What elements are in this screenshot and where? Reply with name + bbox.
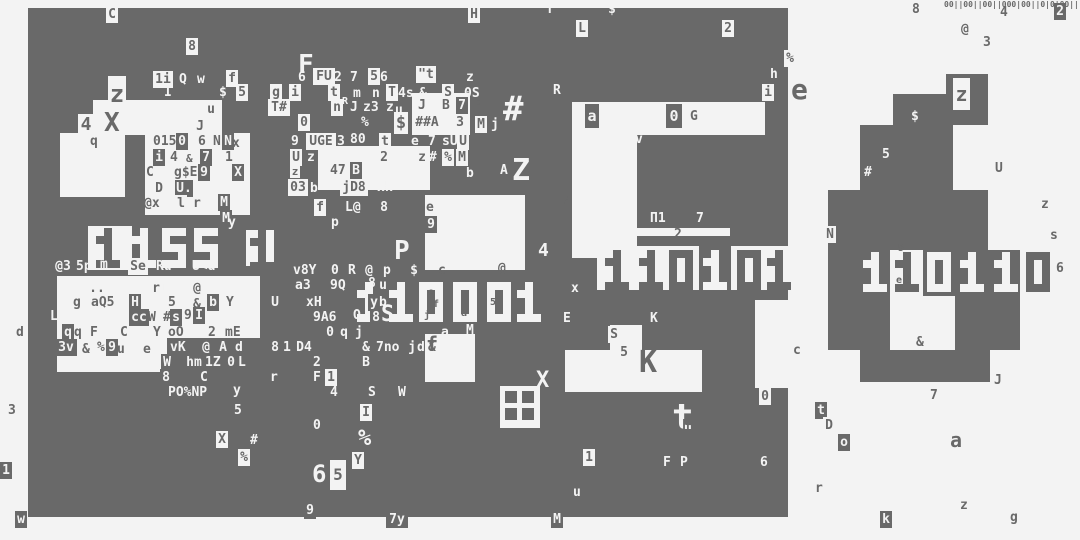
big-binary-digit-pixel [737, 282, 745, 290]
big-binary-digit-pixel [605, 282, 613, 290]
noise-glyph: G [690, 110, 698, 123]
light-patch [565, 350, 702, 392]
big-binary-digit-pixel [104, 228, 112, 236]
noise-glyph: 8 [368, 277, 376, 290]
noise-glyph: 6 [198, 135, 206, 148]
noise-glyph: v [113, 285, 118, 294]
big-binary-digit-pixel [677, 282, 685, 290]
big-binary-digit-pixel [669, 266, 677, 274]
noise-glyph: G [143, 356, 151, 369]
noise-glyph: p [383, 264, 391, 277]
noise-glyph: @ [961, 23, 969, 36]
noise-glyph: 1 [225, 151, 233, 164]
big-binary-digit-pixel [911, 284, 919, 292]
big-binary-digit-pixel [1002, 284, 1010, 292]
noise-glyph: b [466, 167, 474, 180]
noise-glyph: Q [179, 73, 187, 86]
big-binary-digit-pixel [621, 282, 629, 290]
noise-glyph: H [468, 6, 480, 23]
big-binary-digit-pixel [258, 246, 266, 254]
big-binary-digit-pixel [745, 282, 753, 290]
noise-glyph: o [838, 434, 850, 451]
noise-glyph: z [307, 151, 315, 164]
noise-glyph: r [815, 482, 823, 495]
noise-glyph: r [270, 371, 278, 384]
noise-glyph: r [193, 197, 201, 210]
big-binary-digit-pixel [495, 314, 503, 322]
noise-glyph: M [475, 116, 487, 133]
noise-glyph: D [153, 180, 165, 197]
noise-glyph: z [1041, 198, 1049, 211]
noise-glyph: M [456, 149, 468, 166]
big-binary-digit-pixel [503, 290, 511, 298]
noise-glyph: e [791, 76, 808, 104]
noise-glyph: q [338, 324, 350, 341]
big-binary-digit-pixel [453, 306, 461, 314]
noise-glyph: 2 [722, 20, 734, 37]
noise-glyph: U [995, 162, 1003, 175]
noise-glyph: y [233, 384, 241, 397]
noise-glyph: U [156, 103, 164, 116]
big-binary-digit-pixel [775, 274, 783, 282]
noise-glyph: P [394, 238, 410, 264]
noise-glyph: u [573, 486, 581, 499]
noise-glyph: 8 [160, 369, 172, 386]
noise-glyph: 9 [291, 135, 299, 148]
big-binary-digit-pixel [943, 284, 951, 292]
big-binary-digit-pixel [1002, 268, 1010, 276]
big-binary-digit-pixel [775, 250, 783, 258]
noise-glyph: C [200, 371, 208, 384]
noise-glyph: & [82, 343, 90, 356]
dark-patch [522, 391, 534, 403]
big-binary-digit-pixel [775, 266, 783, 274]
big-binary-digit-pixel [613, 274, 621, 282]
noise-glyph: i [762, 84, 774, 101]
big-binary-digit-pixel [162, 228, 170, 236]
noise-glyph: S [608, 326, 620, 343]
big-binary-digit-pixel [140, 244, 148, 252]
noise-glyph: # [429, 151, 437, 164]
dark-patch [860, 350, 990, 382]
big-binary-digit-pixel [613, 282, 621, 290]
noise-glyph: 5 [330, 460, 346, 490]
big-binary-digit-pixel [525, 290, 533, 298]
noise-glyph: @ [498, 262, 506, 275]
big-binary-digit-pixel [162, 244, 170, 252]
noise-glyph: n [372, 87, 380, 100]
big-binary-digit-pixel [737, 258, 745, 266]
noise-glyph: % [238, 449, 250, 466]
big-binary-digit-pixel [162, 236, 170, 244]
noise-glyph: z [290, 164, 300, 178]
noise-glyph: p [331, 216, 339, 229]
noise-glyph: F [473, 99, 481, 112]
noise-glyph: $ [911, 110, 919, 123]
big-binary-digit-pixel [250, 262, 258, 270]
big-binary-digit-pixel [655, 282, 663, 290]
noise-glyph: L@ [345, 201, 361, 214]
noise-glyph: I [164, 86, 172, 99]
big-binary-digit-pixel [903, 260, 911, 268]
noise-glyph: 0 [298, 114, 310, 131]
noise-glyph: l [175, 195, 187, 212]
noise-glyph: d [417, 341, 425, 354]
noise-glyph: 2 [334, 71, 342, 84]
noise-glyph: j [424, 311, 430, 321]
noise-glyph: h [682, 419, 690, 432]
noise-glyph: w [197, 73, 205, 86]
noise-glyph: 2 [904, 274, 912, 287]
big-binary-digit-pixel [210, 244, 218, 252]
big-binary-digit-pixel [525, 306, 533, 314]
big-binary-digit-pixel [767, 282, 775, 290]
noise-glyph: 2 [1054, 3, 1066, 20]
big-binary-digit-pixel [613, 250, 621, 258]
big-binary-digit-pixel [405, 314, 413, 322]
big-binary-digit-pixel [685, 250, 693, 258]
light-patch [637, 228, 730, 236]
noise-glyph: 5 [898, 244, 904, 254]
big-binary-digit-pixel [639, 282, 647, 290]
big-binary-digit-pixel [935, 284, 943, 292]
noise-glyph: 5 [490, 298, 496, 308]
noise-glyph: oO [168, 326, 184, 339]
big-binary-digit-pixel [469, 298, 477, 306]
big-binary-digit-pixel [1026, 268, 1034, 276]
big-binary-digit-pixel [685, 282, 693, 290]
noise-glyph: Y [226, 296, 234, 309]
noise-glyph: D [823, 417, 835, 434]
noise-glyph: a [441, 326, 449, 339]
noise-glyph: Se [128, 258, 148, 275]
noise-glyph: i [289, 84, 301, 101]
noise-glyph: X [450, 341, 458, 354]
big-binary-digit-pixel [469, 282, 477, 290]
noise-glyph: 9A6 [313, 311, 336, 324]
noise-glyph: d [235, 341, 243, 354]
noise-glyph: 0 [331, 264, 339, 277]
noise-glyph: 5 [236, 84, 248, 101]
big-binary-digit-pixel [711, 282, 719, 290]
noise-glyph: 2 [378, 149, 390, 166]
big-binary-digit-pixel [397, 290, 405, 298]
dark-patch [522, 408, 534, 420]
big-binary-digit-pixel [96, 236, 104, 244]
noise-glyph: J [418, 99, 426, 112]
big-binary-digit-pixel [927, 252, 935, 260]
big-binary-digit-pixel [703, 282, 711, 290]
big-binary-digit-pixel [194, 228, 202, 236]
noise-glyph: jD8 [340, 179, 368, 196]
big-binary-digit-pixel [469, 314, 477, 322]
big-binary-digit-pixel [194, 244, 202, 252]
big-binary-digit-pixel [1042, 260, 1050, 268]
big-binary-digit-pixel [170, 244, 178, 252]
big-binary-digit-pixel [250, 238, 258, 246]
noise-glyph: 7 [696, 212, 704, 225]
glitch-canvas: C81iQwfzI$5UDKu4XJkHF6FU2756"tzgitmnT4s&… [0, 0, 1080, 540]
noise-glyph: j [355, 326, 363, 339]
big-binary-digit-pixel [968, 252, 976, 260]
noise-glyph: Ru [156, 260, 172, 273]
big-binary-digit-pixel [453, 290, 461, 298]
big-binary-digit-pixel [903, 252, 911, 260]
big-binary-digit-pixel [140, 228, 148, 236]
noise-glyph: 7 [930, 389, 938, 402]
noise-glyph: M [466, 324, 474, 337]
big-binary-digit-pixel [148, 260, 156, 268]
noise-glyph: C [146, 166, 154, 179]
noise-glyph: m [353, 87, 361, 100]
big-binary-digit-pixel [435, 314, 443, 322]
noise-glyph: xH [306, 296, 322, 309]
big-binary-digit-pixel [669, 274, 677, 282]
noise-glyph: B [350, 162, 362, 179]
noise-glyph: N [213, 135, 221, 148]
noise-glyph: f [314, 199, 326, 216]
noise-glyph: 4 [1000, 6, 1008, 19]
noise-glyph: 0 [324, 324, 336, 341]
noise-glyph: s [1050, 229, 1058, 242]
big-binary-digit-pixel [503, 306, 511, 314]
noise-glyph: B [360, 354, 372, 371]
big-binary-digit-pixel [960, 284, 968, 292]
big-binary-digit-pixel [647, 282, 655, 290]
noise-glyph: 6 [467, 341, 475, 354]
noise-glyph: e [428, 288, 434, 298]
big-binary-digit-pixel [711, 258, 719, 266]
big-binary-digit-pixel [419, 290, 427, 298]
noise-glyph: 7no [376, 341, 399, 354]
noise-glyph: u [377, 277, 389, 294]
big-binary-digit-pixel [863, 284, 871, 292]
noise-glyph: z [386, 101, 394, 114]
noise-glyph: 3 [454, 114, 466, 131]
noise-glyph: 5 [882, 148, 890, 161]
big-binary-digit-pixel [1026, 276, 1034, 284]
big-binary-digit-pixel [517, 314, 525, 322]
big-binary-digit-pixel [994, 284, 1002, 292]
big-binary-digit-pixel [178, 228, 186, 236]
big-binary-digit-pixel [669, 282, 677, 290]
big-binary-digit-pixel [871, 284, 879, 292]
dark-patch [828, 250, 890, 350]
noise-glyph: 5 [234, 404, 242, 417]
noise-glyph: Y [153, 326, 161, 339]
big-binary-digit-pixel [202, 228, 210, 236]
noise-glyph: 7 [428, 135, 436, 148]
big-binary-digit-pixel [775, 282, 783, 290]
noise-glyph: f [546, 3, 554, 16]
big-binary-digit-pixel [469, 290, 477, 298]
noise-glyph: 1 [0, 462, 12, 479]
noise-glyph: % [442, 149, 454, 166]
noise-glyph: k [438, 116, 446, 129]
big-binary-digit-pixel [685, 258, 693, 266]
noise-glyph: "t [416, 66, 436, 83]
noise-glyph: aQ5 [91, 296, 114, 309]
big-binary-digit-pixel [1026, 252, 1034, 260]
big-binary-digit-pixel [517, 290, 525, 298]
big-binary-digit-pixel [895, 260, 903, 268]
noise-glyph: % [358, 428, 371, 450]
noise-glyph: h [770, 68, 778, 81]
big-binary-digit-pixel [753, 274, 761, 282]
noise-glyph: m [100, 258, 108, 271]
noise-glyph: 9Q [330, 279, 346, 292]
noise-glyph: 9 [198, 164, 210, 181]
noise-glyph: 8 [269, 339, 281, 356]
big-binary-digit-pixel [613, 258, 621, 266]
noise-glyph: D4 [293, 339, 315, 356]
big-binary-digit-pixel [357, 290, 365, 298]
noise-glyph: 47 [330, 164, 346, 177]
noise-glyph: # [864, 166, 872, 179]
noise-glyph: 4 [330, 386, 338, 399]
noise-glyph: % [361, 116, 369, 129]
big-binary-digit-pixel [737, 250, 745, 258]
big-binary-digit-pixel [1026, 260, 1034, 268]
big-binary-digit-pixel [775, 258, 783, 266]
big-binary-digit-pixel [711, 250, 719, 258]
noise-glyph: Z [512, 156, 530, 186]
noise-glyph: 0 [176, 133, 188, 150]
noise-glyph: J [994, 374, 1002, 387]
noise-glyph: # [503, 92, 523, 126]
noise-glyph: F [313, 371, 321, 384]
noise-glyph: b [310, 182, 318, 195]
noise-glyph: x [232, 137, 240, 150]
big-binary-digit-pixel [258, 238, 266, 246]
big-binary-digit-pixel [737, 274, 745, 282]
dark-patch [505, 391, 517, 403]
noise-glyph: M [551, 511, 563, 528]
noise-glyph: b [207, 294, 219, 311]
big-binary-digit-pixel [737, 266, 745, 274]
noise-glyph: a [461, 309, 467, 319]
noise-glyph: I [360, 404, 372, 421]
noise-glyph: 1 [283, 341, 291, 354]
big-binary-digit-pixel [1026, 284, 1034, 292]
noise-glyph: 5 [368, 68, 380, 85]
noise-glyph: @x [144, 197, 160, 210]
noise-glyph: 3 [983, 36, 991, 49]
big-binary-digit-pixel [419, 282, 427, 290]
noise-glyph: S [381, 304, 394, 326]
big-binary-digit-pixel [871, 276, 879, 284]
noise-glyph: g$E [174, 166, 197, 179]
noise-glyph: 9 [184, 309, 192, 322]
noise-glyph: 3 [8, 404, 16, 417]
big-binary-digit-pixel [943, 268, 951, 276]
noise-glyph: 4 [78, 114, 94, 136]
noise-glyph: vK [170, 341, 186, 354]
noise-glyph: 5p [76, 260, 92, 273]
noise-glyph: 2 [674, 228, 682, 241]
big-binary-digit-pixel [669, 258, 677, 266]
noise-glyph: C [120, 326, 128, 339]
noise-glyph: R [342, 97, 348, 107]
big-binary-digit-pixel [469, 306, 477, 314]
noise-glyph: @ [191, 280, 203, 297]
big-binary-digit-pixel [753, 282, 761, 290]
noise-glyph: 8 [912, 3, 920, 16]
noise-glyph: F [663, 456, 671, 469]
dark-patch [893, 94, 988, 125]
noise-glyph: z [960, 499, 968, 512]
big-binary-digit-pixel [258, 254, 266, 262]
noise-glyph: 80 [350, 133, 366, 146]
big-binary-digit-pixel [178, 260, 186, 268]
noise-glyph: z [416, 149, 428, 166]
noise-glyph: 0 [313, 419, 321, 432]
noise-glyph: 2 [313, 356, 321, 369]
noise-glyph: X [536, 370, 549, 392]
noise-glyph: t [379, 133, 391, 150]
noise-glyph: 5 [168, 296, 176, 309]
noise-glyph: K [76, 282, 84, 295]
noise-glyph: a [585, 104, 599, 128]
big-binary-digit-pixel [968, 276, 976, 284]
noise-glyph: u [117, 343, 125, 356]
noise-glyph: C [106, 6, 118, 23]
noise-glyph: F [90, 326, 98, 339]
noise-glyph: 6 [760, 456, 768, 469]
big-binary-digit-pixel [202, 244, 210, 252]
noise-glyph: e [896, 276, 902, 286]
noise-glyph: 5 [617, 342, 631, 362]
big-binary-digit-pixel [863, 260, 871, 268]
noise-glyph: Y [352, 452, 364, 469]
big-binary-digit-pixel [605, 258, 613, 266]
noise-glyph: x [571, 282, 579, 295]
noise-glyph: W [398, 386, 406, 399]
noise-glyph: 7 [350, 71, 358, 84]
big-binary-digit-pixel [927, 260, 935, 268]
big-binary-digit-pixel [533, 314, 541, 322]
noise-glyph: $ [219, 86, 227, 99]
noise-glyph: e [411, 135, 419, 148]
big-binary-digit-pixel [927, 268, 935, 276]
big-binary-digit-pixel [669, 250, 677, 258]
noise-glyph: c [793, 344, 801, 357]
noise-glyph: 6 [312, 462, 326, 486]
big-binary-digit-pixel [178, 252, 186, 260]
noise-glyph: 1Z [205, 356, 221, 369]
big-binary-digit-pixel [767, 258, 775, 266]
big-binary-digit-pixel [435, 282, 443, 290]
noise-glyph: DK [186, 103, 202, 116]
big-binary-digit-pixel [976, 284, 984, 292]
big-binary-digit-pixel [503, 282, 511, 290]
noise-glyph: cc [129, 309, 149, 326]
noise-glyph: K [639, 348, 657, 378]
light-patch [572, 135, 637, 258]
noise-glyph: z [953, 78, 970, 110]
big-binary-digit-pixel [1034, 284, 1042, 292]
noise-glyph: z [108, 76, 126, 112]
big-binary-digit-pixel [258, 262, 266, 270]
big-binary-digit-pixel [419, 298, 427, 306]
big-binary-digit-pixel [104, 244, 112, 252]
noise-glyph: q [74, 326, 82, 339]
big-binary-digit-pixel [753, 250, 761, 258]
noise-glyph: a3 [295, 279, 311, 292]
noise-glyph: 8 [378, 199, 390, 216]
noise-glyph: 0 [225, 354, 237, 371]
noise-glyph: B [442, 99, 450, 112]
